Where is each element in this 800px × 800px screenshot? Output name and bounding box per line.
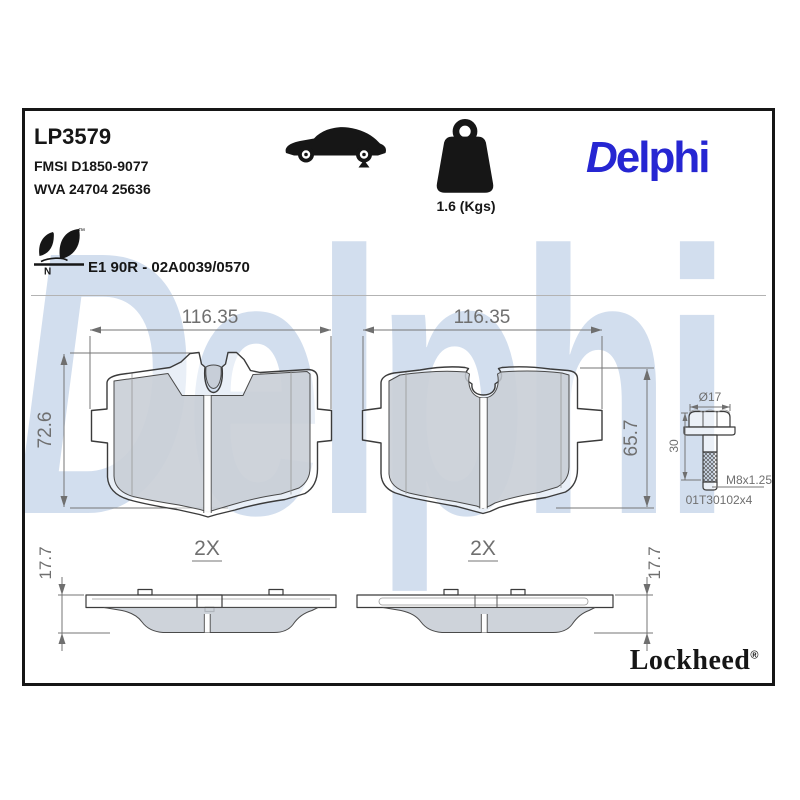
pad-front-right-view: 116.35 65.7 2X	[363, 307, 655, 561]
delphi-logo: Delphi	[586, 133, 708, 183]
lockheed-logo: Lockheed®	[630, 645, 759, 677]
approval-number: E1 90R - 02A0039/0570	[88, 259, 250, 276]
dim-width-right-pad: 116.35	[454, 307, 511, 328]
dim-bolt-head-diameter: Ø17	[699, 390, 722, 404]
pad-side-left-view: 17.7	[36, 546, 336, 651]
dim-thickness-right: 17.7	[645, 546, 664, 579]
qty-right-pad: 2X	[470, 537, 496, 560]
weight-value: 1.6 (Kgs)	[418, 198, 514, 214]
weight-icon	[427, 119, 503, 197]
pad-side-right-view: 17.7	[357, 546, 664, 651]
bolt-part-code: 01T30102x4	[686, 493, 753, 507]
fmsi-reference: FMSI D1850-9077	[34, 158, 148, 174]
pad-front-left-view: 116.35 72.6 2X	[35, 307, 332, 561]
qty-left-pad: 2X	[194, 537, 220, 560]
registered-symbol: ®	[750, 650, 759, 662]
datasheet-page: Delphi LP3579 FMSI D1850-9077 WVA 24704 …	[0, 0, 800, 800]
dim-thickness-left: 17.7	[36, 546, 55, 579]
car-rear-axle-icon	[280, 117, 390, 169]
bolt-drawing: Ø17 30 M8x1.25 01T30102x4	[667, 390, 772, 507]
trademark-symbol: ™	[78, 228, 85, 235]
dim-height-left-pad: 72.6	[35, 412, 56, 449]
eco-letter: N	[44, 267, 51, 278]
bolt-thread-spec: M8x1.25	[726, 473, 772, 487]
dim-width-left-pad: 116.35	[182, 307, 239, 328]
sheet-border-frame: Delphi LP3579 FMSI D1850-9077 WVA 24704 …	[22, 108, 775, 686]
dim-height-right-pad: 65.7	[621, 420, 642, 457]
wva-reference: WVA 24704 25636	[34, 181, 151, 197]
eco-leaf-icon: N ™	[33, 223, 87, 277]
dim-bolt-length: 30	[667, 439, 681, 453]
part-number: LP3579	[34, 124, 111, 150]
lockheed-wordmark: Lockheed	[630, 645, 751, 676]
